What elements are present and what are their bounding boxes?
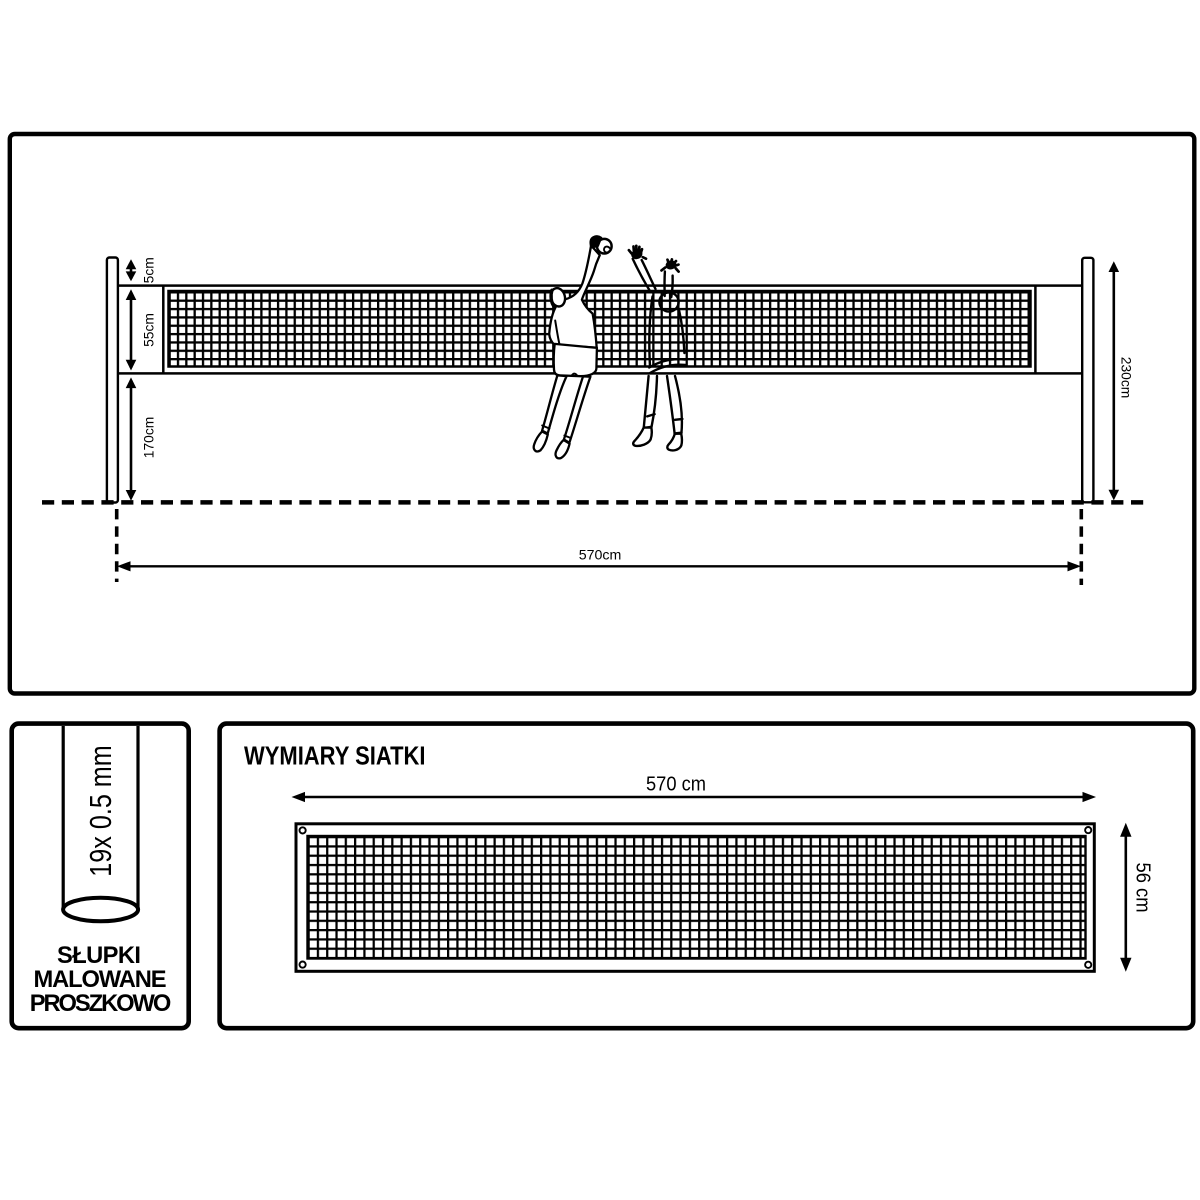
svg-text:WYMIARY SIATKI: WYMIARY SIATKI [244,743,426,771]
svg-text:570cm: 570cm [579,548,622,564]
svg-text:570 cm: 570 cm [646,774,706,796]
svg-text:SŁUPKI: SŁUPKI [57,943,141,969]
svg-text:56 cm: 56 cm [1131,863,1153,913]
svg-text:230cm: 230cm [1118,357,1133,398]
svg-text:55cm: 55cm [141,313,156,347]
svg-text:PROSZKOWO: PROSZKOWO [30,991,172,1017]
svg-text:5cm: 5cm [141,257,156,283]
svg-text:19x 0.5 mm: 19x 0.5 mm [83,745,118,877]
svg-text:MALOWANE: MALOWANE [34,967,167,993]
svg-text:170cm: 170cm [141,417,156,458]
